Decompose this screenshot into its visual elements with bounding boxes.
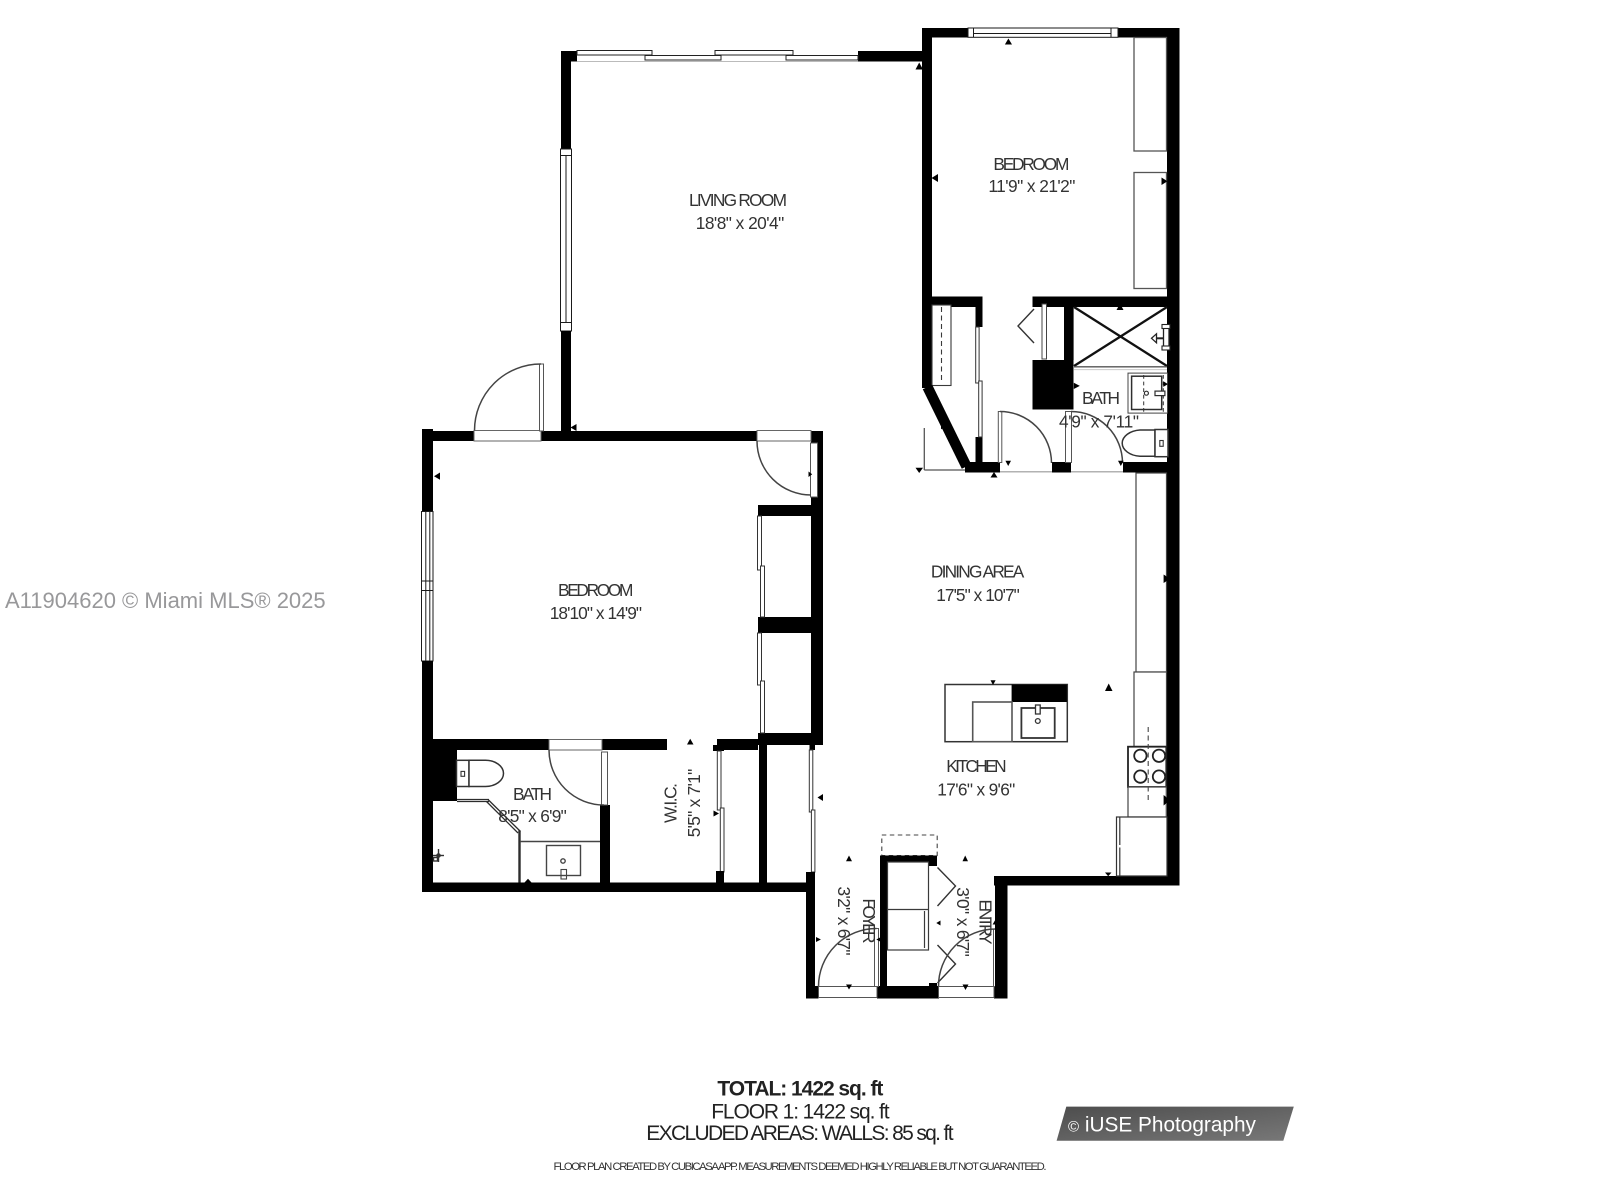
svg-text:18'10" x 14'9": 18'10" x 14'9" [550, 603, 642, 623]
svg-text:© iUSE Photography: © iUSE Photography [1068, 1114, 1257, 1137]
svg-text:8'5" x 6'9": 8'5" x 6'9" [498, 806, 567, 826]
svg-text:BATH: BATH [1082, 388, 1120, 408]
svg-text:BEDROOM: BEDROOM [993, 154, 1069, 174]
svg-text:BEDROOM: BEDROOM [558, 580, 633, 600]
svg-text:11'9" x 21'2": 11'9" x 21'2" [988, 176, 1075, 196]
svg-text:EXCLUDED AREAS: WALLS: 85 sq.: EXCLUDED AREAS: WALLS: 85 sq. ft [646, 1122, 953, 1145]
svg-text:5'5" x 7'1": 5'5" x 7'1" [684, 769, 704, 838]
svg-text:18'8" x 20'4": 18'8" x 20'4" [696, 213, 785, 233]
svg-text:KITCHEN: KITCHEN [946, 756, 1006, 776]
svg-text:17'5" x 10'7": 17'5" x 10'7" [936, 585, 1020, 605]
svg-text:FLOOR 1: 1422 sq. ft: FLOOR 1: 1422 sq. ft [711, 1101, 890, 1124]
svg-text:LIVING ROOM: LIVING ROOM [689, 190, 787, 210]
svg-text:3'0" x 6'7": 3'0" x 6'7" [953, 887, 973, 957]
svg-text:ENTRY: ENTRY [975, 900, 995, 945]
svg-text:4'9" x 7'11": 4'9" x 7'11" [1059, 412, 1139, 432]
svg-text:A11904620 © Miami MLS® 2025: A11904620 © Miami MLS® 2025 [5, 588, 326, 613]
svg-text:BATH: BATH [513, 784, 552, 804]
svg-text:TOTAL: 1422 sq. ft: TOTAL: 1422 sq. ft [717, 1078, 883, 1101]
svg-text:17'6" x 9'6": 17'6" x 9'6" [937, 780, 1015, 800]
svg-text:W.I.C.: W.I.C. [661, 783, 681, 823]
svg-text:FLOOR PLAN CREATED BY CUBICASA: FLOOR PLAN CREATED BY CUBICASA APP. MEAS… [554, 1161, 1047, 1173]
svg-text:DINING AREA: DINING AREA [931, 562, 1025, 582]
svg-text:3'2" x 6'7": 3'2" x 6'7" [834, 887, 854, 956]
svg-text:FOYER: FOYER [859, 899, 879, 944]
